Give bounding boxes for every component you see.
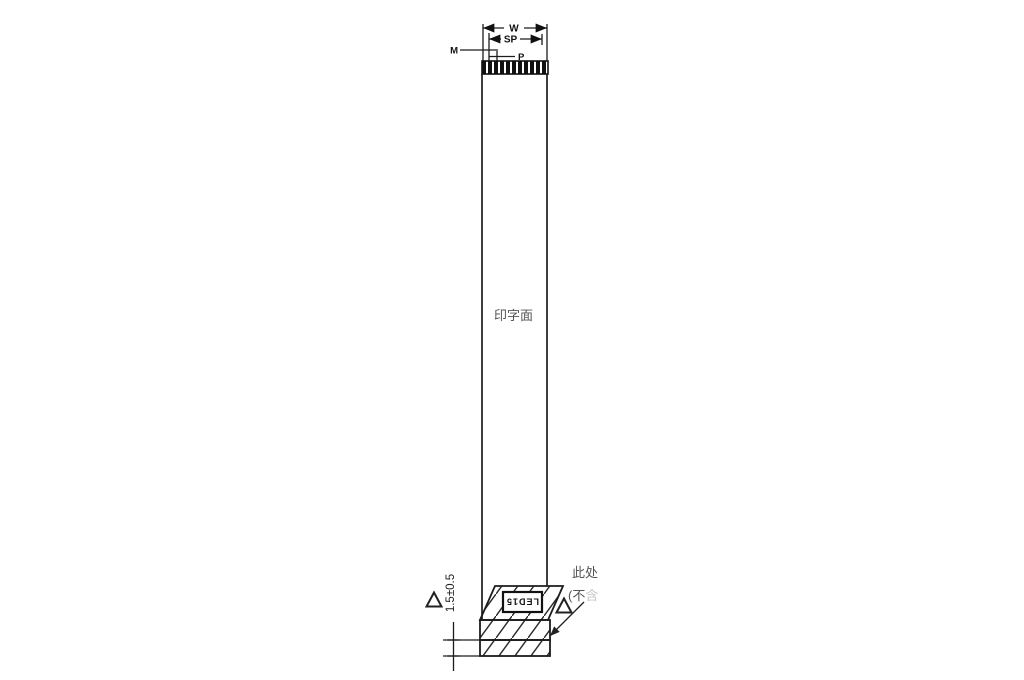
- sp-dim-label: SP: [504, 35, 518, 46]
- stiffener-reinforce-band-2: [480, 640, 550, 656]
- note-text-line1: 此处: [572, 565, 598, 580]
- thickness-dimension: [443, 622, 480, 671]
- note-text-line2: (不含: [568, 588, 598, 603]
- cable-body: [482, 74, 547, 620]
- stiffener-reinforce-band-1: [480, 620, 550, 640]
- stiffener-marking-label: LED15: [506, 597, 539, 607]
- revision-triangle-icon: [427, 593, 442, 607]
- conductor-band: [482, 61, 548, 74]
- printed-side-label: 印字面: [494, 308, 533, 323]
- margin-dim-label: M: [450, 46, 458, 57]
- width-dim-label: W: [509, 24, 519, 35]
- thickness-dim-label: 1.5±0.5: [445, 574, 457, 612]
- conductor-stripes: [482, 61, 548, 74]
- drawing-canvas: W SP M P 印字面 LED15: [0, 0, 1024, 680]
- end-stiffener: LED15: [480, 586, 563, 656]
- technical-drawing: W SP M P 印字面 LED15: [0, 0, 1024, 680]
